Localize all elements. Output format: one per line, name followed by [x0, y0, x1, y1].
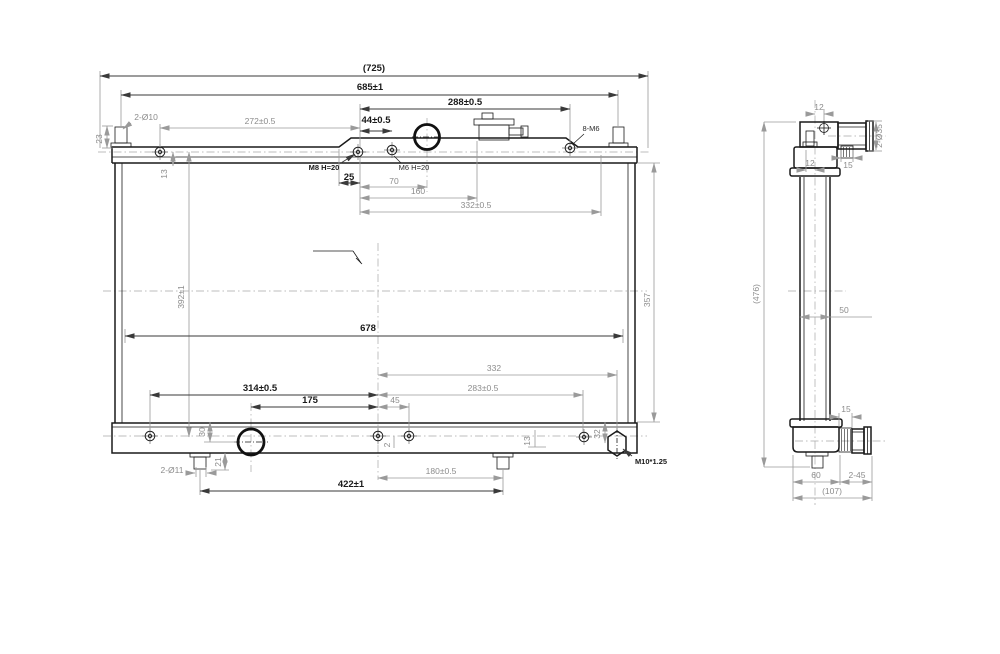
dim-175-label: 175 — [302, 395, 319, 406]
dim-25: 25 — [339, 172, 360, 183]
dim-2x11-label: 2-Ø11 — [161, 465, 184, 475]
dim-422: 422±1 — [200, 479, 503, 491]
dim-2-45: 2-45 — [840, 470, 872, 482]
filler-neck — [474, 113, 528, 140]
dim-13-bottom: 13 — [522, 430, 546, 447]
dim-32: 32 — [592, 422, 605, 443]
dim-13-bottom-label: 13 — [522, 436, 532, 446]
dim-60: 60 — [793, 470, 840, 482]
side-bottom-tank — [790, 419, 871, 468]
callout-m8-label: M8 H=20 — [309, 163, 340, 172]
dim-2x11-drain-pegs: 2-Ø11 — [161, 465, 217, 475]
dim-15-bottom: 15 — [831, 404, 860, 417]
callout-2x10-label: 2-Ø10 — [134, 112, 158, 122]
dim-678-label: 678 — [360, 323, 376, 334]
dim-175: 175 — [251, 395, 378, 407]
dim-2-label: 2 — [382, 442, 392, 447]
dim-overall-height: (476) — [751, 122, 764, 467]
dim-283-label: 283±0.5 — [468, 383, 499, 393]
core-break-symbol — [313, 251, 362, 264]
bolt-hole — [370, 428, 386, 444]
bolt-hole — [576, 429, 592, 445]
dim-50: 50 — [800, 305, 872, 317]
front-bottom-tank — [112, 423, 637, 469]
dim-12-top: 12 — [806, 102, 833, 114]
bottom-right-drain-peg — [493, 453, 513, 469]
dim-392: 392±1 — [176, 152, 189, 437]
dim-25-label: 25 — [344, 172, 355, 183]
dim-332-bottom: 332 — [378, 363, 617, 375]
dim-314-label: 314±0.5 — [243, 383, 278, 394]
callout-2x10-pin-holes: 2-Ø10 — [123, 112, 158, 129]
top-right-mounting-pin — [609, 127, 628, 147]
dim-180-label: 180±0.5 — [426, 466, 457, 476]
dim-60-label: 60 — [811, 470, 821, 480]
dim-332-top: 332±0.5 — [360, 200, 601, 212]
dim-678: 678 — [125, 323, 623, 336]
callout-m6-label: M6 H=20 — [399, 163, 430, 172]
dim-overall-width: (725) — [100, 63, 648, 76]
dim-2-45-label: 2-45 — [848, 470, 865, 480]
bleed-screw — [817, 121, 831, 135]
dim-288: 288±0.5 — [360, 97, 570, 109]
dim-overall-depth: (107) — [793, 486, 872, 498]
dim-30: 30 — [197, 422, 210, 442]
radiator-engineering-drawing: (725) 685±1 288±0.5 272±0.5 44±0.5 2-Ø10 — [0, 0, 1000, 654]
dim-314: 314±0.5 — [150, 383, 378, 395]
dim-180: 180±0.5 — [378, 466, 503, 478]
dim-725-label: (725) — [363, 63, 385, 74]
dim-45-label: 45 — [390, 395, 400, 405]
dim-pin-span: 685±1 — [121, 82, 618, 95]
dim-13-top-label: 13 — [159, 169, 169, 179]
dim-160: 160 — [360, 186, 477, 198]
dim-70-label: 70 — [389, 176, 399, 186]
dim-2x35-label: 2-Ø35 — [874, 124, 884, 148]
side-bottom-peg — [806, 452, 828, 468]
dim-21: 21 — [213, 453, 225, 470]
dim-392-label: 392±1 — [176, 285, 186, 309]
callout-m10-thread: M10*1.25 — [623, 449, 667, 466]
dim-2: 2 — [382, 436, 394, 448]
dim-32-label: 32 — [592, 429, 602, 439]
callout-m6: M6 H=20 — [394, 156, 429, 172]
dim-272-label: 272±0.5 — [245, 116, 276, 126]
dim-15-bottom-label: 15 — [841, 404, 851, 414]
dim-50-label: 50 — [839, 305, 849, 315]
front-bolt-holes — [142, 140, 592, 445]
dim-12-mid-label: 12 — [805, 158, 815, 168]
dim-30-label: 30 — [197, 427, 207, 437]
dim-23: 23 — [94, 126, 107, 148]
dim-pipe-diameter: 2-Ø35 — [874, 122, 884, 150]
dim-21-label: 21 — [213, 457, 223, 467]
dim-23-label: 23 — [94, 134, 104, 144]
top-left-mounting-pin — [111, 127, 131, 147]
dim-332-bottom-label: 332 — [487, 363, 501, 373]
bolt-hole — [350, 144, 366, 160]
dim-12-top-label: 12 — [814, 102, 824, 112]
callout-8m6: 8-M6 — [573, 124, 600, 144]
dim-160-label: 160 — [411, 186, 425, 196]
dim-13-top: 13 — [159, 152, 173, 179]
dim-288-label: 288±0.5 — [448, 97, 483, 108]
side-top-connector — [841, 146, 853, 158]
side-outlet-pipe — [839, 427, 871, 454]
dim-357: 357 — [642, 163, 654, 422]
dim-15-top-label: 15 — [843, 160, 853, 170]
dim-476-label: (476) — [751, 284, 761, 304]
front-core-side-channels — [115, 163, 635, 423]
dim-44: 44±0.5 — [360, 115, 392, 131]
side-top-tank — [790, 121, 873, 176]
callout-8m6-label: 8-M6 — [582, 124, 599, 133]
dim-685-label: 685±1 — [357, 82, 384, 93]
side-view: 12 2-Ø35 15 12 (476) — [751, 100, 886, 505]
front-view: (725) 685±1 288±0.5 272±0.5 44±0.5 2-Ø10 — [94, 63, 667, 495]
dim-107-label: (107) — [822, 486, 842, 496]
dim-357-label: 357 — [642, 293, 652, 307]
dim-422-label: 422±1 — [338, 479, 365, 490]
callout-m10-label: M10*1.25 — [635, 457, 667, 466]
dim-45: 45 — [378, 395, 409, 407]
bolt-hole — [384, 142, 400, 158]
dim-44-label: 44±0.5 — [362, 115, 392, 126]
bottom-left-drain-peg — [190, 453, 210, 469]
dim-283: 283±0.5 — [378, 383, 583, 395]
dim-332-top-label: 332±0.5 — [461, 200, 492, 210]
dim-272: 272±0.5 — [160, 116, 360, 128]
